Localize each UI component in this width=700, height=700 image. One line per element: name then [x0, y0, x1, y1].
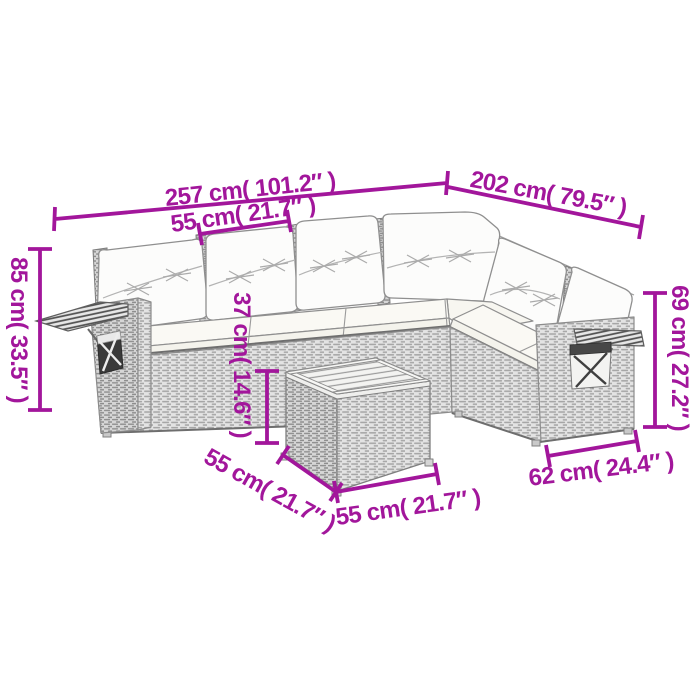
foot	[624, 428, 632, 434]
dimension-label: 37 cm( 14.6″ )	[228, 292, 255, 438]
right-pocket	[570, 342, 611, 389]
back-cushion	[296, 216, 385, 310]
dimension-label: 69 cm( 27.2″ )	[666, 285, 693, 431]
table-foot	[425, 459, 433, 466]
dimension-total-height: 85 cm( 33.5″ )	[5, 249, 52, 410]
product-dimension-diagram: 257 cm( 101.2″ ) 55 cm( 21.7″ ) 202 cm( …	[0, 0, 700, 700]
dimension-label: 85 cm( 33.5″ )	[5, 257, 32, 403]
foot	[455, 411, 462, 417]
left-armrest-side	[138, 298, 151, 430]
coffee-table	[281, 358, 433, 496]
dimension-backrest-height: 69 cm( 27.2″ )	[643, 285, 693, 431]
dimension-label: 55 cm( 21.7″ )	[334, 484, 482, 531]
foot	[532, 440, 540, 446]
sofa-set-illustration: 257 cm( 101.2″ ) 55 cm( 21.7″ ) 202 cm( …	[0, 0, 700, 700]
dimension-label: 202 cm( 79.5″ )	[468, 166, 629, 221]
left-pocket	[97, 331, 123, 374]
